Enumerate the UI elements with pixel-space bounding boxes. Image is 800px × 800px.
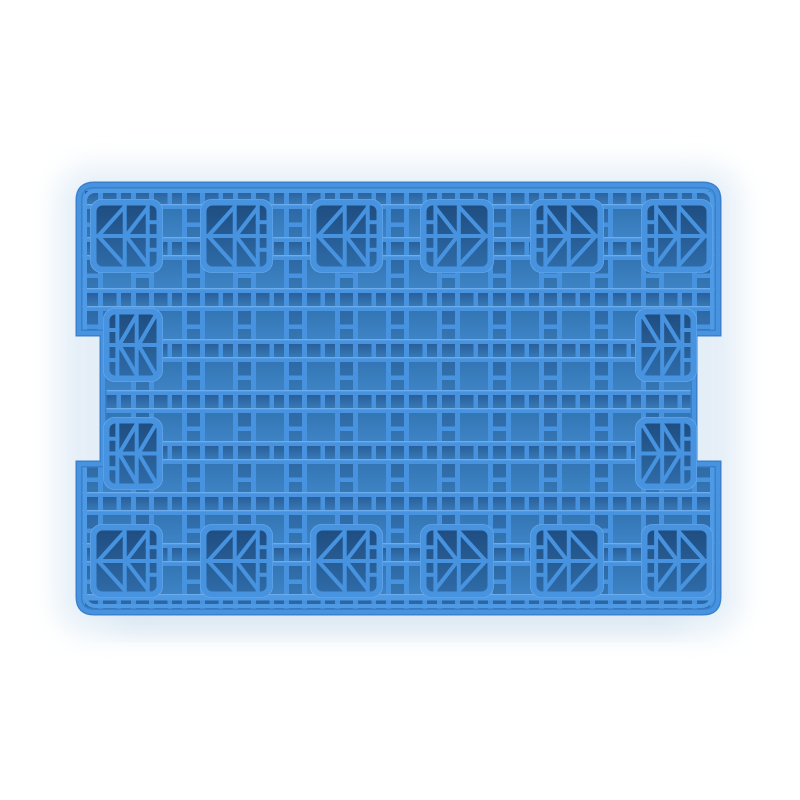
pallet-foot bbox=[91, 525, 162, 597]
pallet-illustration bbox=[0, 0, 800, 800]
pallet-foot bbox=[531, 525, 603, 597]
pallet-foot bbox=[104, 418, 162, 489]
bottom-lip-rib bbox=[79, 596, 718, 601]
pallet-foot bbox=[201, 525, 272, 597]
pallet-foot bbox=[421, 525, 493, 597]
pallet-body bbox=[79, 185, 718, 612]
pallet-foot bbox=[201, 200, 272, 272]
pallet-foot bbox=[104, 309, 162, 381]
pallet-foot bbox=[311, 200, 382, 272]
pallet-foot bbox=[91, 200, 162, 272]
product-photo bbox=[0, 0, 800, 800]
pallet-foot bbox=[636, 418, 696, 489]
pallet-foot bbox=[421, 200, 493, 272]
pallet-foot bbox=[636, 309, 696, 381]
pallet-foot bbox=[311, 525, 382, 597]
pallet-foot bbox=[642, 200, 712, 272]
pallet-foot bbox=[642, 525, 712, 597]
pallet-foot bbox=[531, 200, 603, 272]
